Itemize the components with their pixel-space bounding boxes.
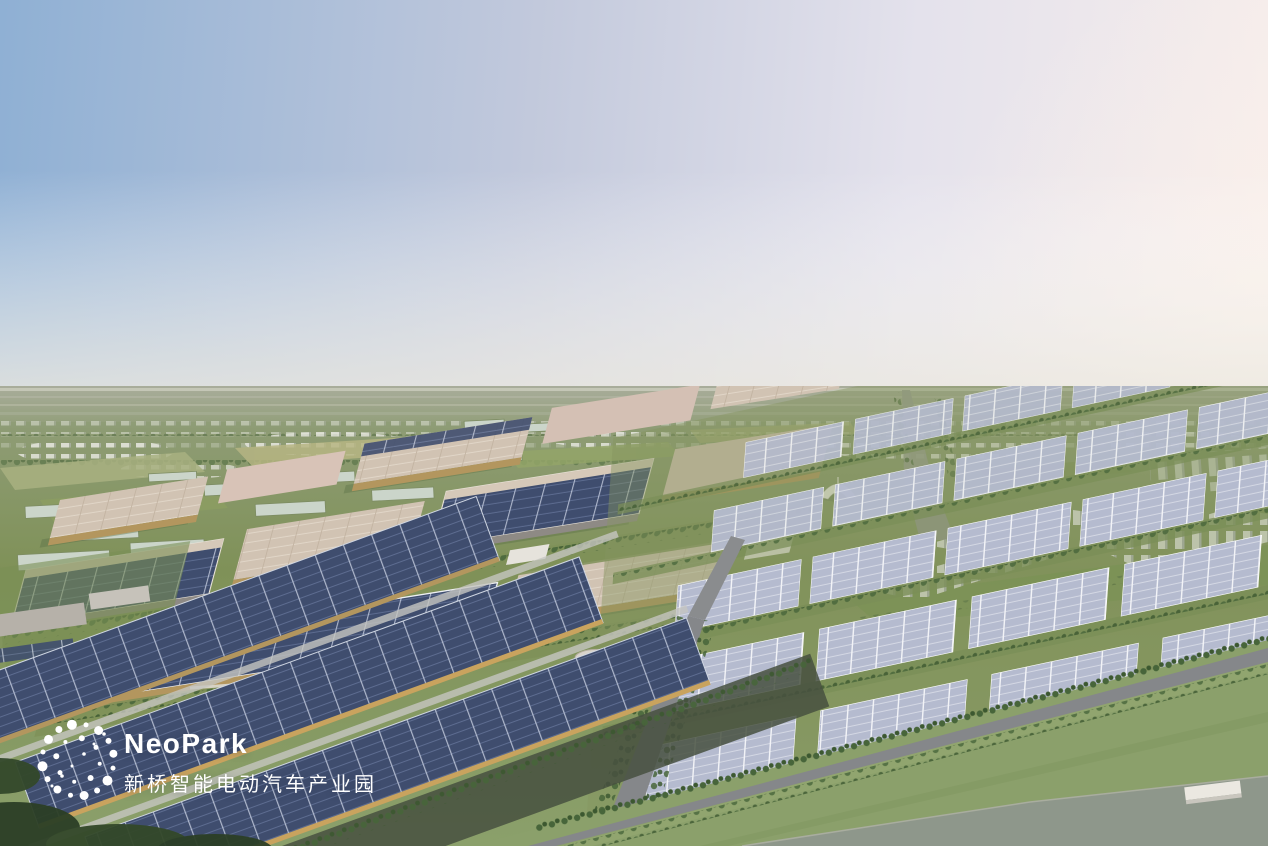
dotted-sphere-icon xyxy=(34,718,122,802)
neopark-logo: NeoPark 新桥智能电动汽车产业园 xyxy=(34,714,377,802)
logo-wordmark: NeoPark xyxy=(124,730,377,758)
logo-subtitle: 新桥智能电动汽车产业园 xyxy=(124,768,377,797)
sky xyxy=(0,0,1268,400)
aerial-rendering: NeoPark 新桥智能电动汽车产业园 xyxy=(0,0,1268,846)
logo-text-block: NeoPark 新桥智能电动汽车产业园 xyxy=(124,714,377,797)
